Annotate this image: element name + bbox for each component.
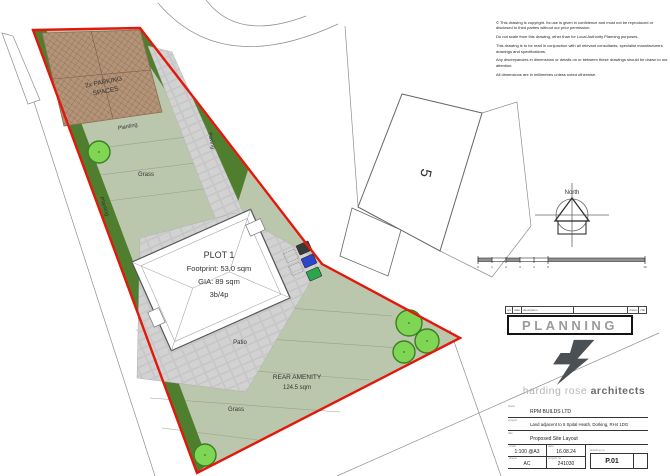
note: This drawing is to be read in conjunctio… xyxy=(496,43,668,54)
drawing-notes: © This drawing is copyright. Its use is … xyxy=(496,20,668,81)
rev-spacer xyxy=(574,307,627,313)
rev-col-header: date xyxy=(513,307,522,313)
revision-table-header: rev date description drawn chk xyxy=(505,306,647,314)
title-row: title Proposed Site Layout xyxy=(508,431,648,445)
north-arrow: North xyxy=(535,183,609,247)
note: © This drawing is copyright. Its use is … xyxy=(496,20,668,31)
plot1-occupancy: 3b/4p xyxy=(210,290,229,299)
client-row: client RPM BUILDS LTD xyxy=(508,404,648,418)
scale-cell: scale 1:100 @A3 xyxy=(508,445,547,457)
north-label: North xyxy=(565,190,580,196)
firm-name-bold: architects xyxy=(591,385,646,397)
grass-label: Grass xyxy=(138,172,154,178)
scale-bar: 0 1 2 3 4 5 10 xyxy=(477,256,647,269)
rev-col-header: rev xyxy=(506,307,513,313)
scale-tick: 5 xyxy=(547,265,549,269)
drawn-cell: drawn AC xyxy=(508,457,547,469)
scale-value: 1:100 @A3 xyxy=(509,449,545,455)
scale-tick: 0 xyxy=(477,265,479,269)
project-no-cell: project no 241030 xyxy=(547,457,586,469)
note: All dimensions are in millimetres unless… xyxy=(496,72,668,77)
date-cell: date 16.08.24 xyxy=(547,445,586,457)
rev-col-header: drawn xyxy=(627,307,639,313)
rev-col-header: chk xyxy=(639,307,646,313)
scale-date-grid: scale 1:100 @A3 date 16.08.24 drawn AC p… xyxy=(508,445,586,469)
rear-amenity-area: 124.5 sqm xyxy=(283,385,311,391)
patio-label: Patio xyxy=(233,340,247,346)
rear-amenity-label: REAR AMENITY xyxy=(273,374,322,381)
parking-area xyxy=(42,30,162,126)
scale-tick: 3 xyxy=(519,265,521,269)
drawing-number: P.01 xyxy=(591,454,633,468)
plot1-gia: GIA: 89 sqm xyxy=(198,277,240,286)
drawing-number-box: P.01 xyxy=(590,453,648,469)
scale-tick: 4 xyxy=(533,265,535,269)
scale-tick: 1 xyxy=(491,265,493,269)
neighbour-house-5: 5 xyxy=(340,94,482,276)
architect-logo-glyph xyxy=(540,338,600,385)
scale-tick: 10 xyxy=(643,265,647,269)
project-no-value: 241030 xyxy=(548,461,584,467)
site-plan-sheet: 5 xyxy=(0,0,670,476)
plot1-title: PLOT 1 xyxy=(204,250,235,260)
firm-name: harding rose architects xyxy=(498,385,670,397)
note: Do not scale from this drawing, other th… xyxy=(496,34,668,39)
rev-col-header: description xyxy=(522,307,574,313)
note: Any discrepancies in dimensions or detai… xyxy=(496,57,668,68)
plot1-footprint: Footprint: 53.0 sqm xyxy=(187,264,252,273)
drawing-no-label: drawing no xyxy=(590,448,605,452)
drawing-rev-cell xyxy=(633,454,647,468)
scale-tick: 2 xyxy=(505,265,507,269)
architect-logo xyxy=(540,338,640,385)
firm-name-light: harding rose xyxy=(523,385,591,397)
project-value: Land adjacent to 5 Spital Heath, Dorking… xyxy=(508,422,648,428)
drawn-value: AC xyxy=(509,461,545,467)
title-value: Proposed Site Layout xyxy=(508,436,648,442)
client-value: RPM BUILDS LTD xyxy=(508,409,648,415)
date-value: 16.08.24 xyxy=(548,449,584,455)
status-stamp: PLANNING xyxy=(507,315,633,335)
project-row: project Land adjacent to 5 Spital Heath,… xyxy=(508,418,648,432)
grass-label: Grass xyxy=(228,407,244,413)
